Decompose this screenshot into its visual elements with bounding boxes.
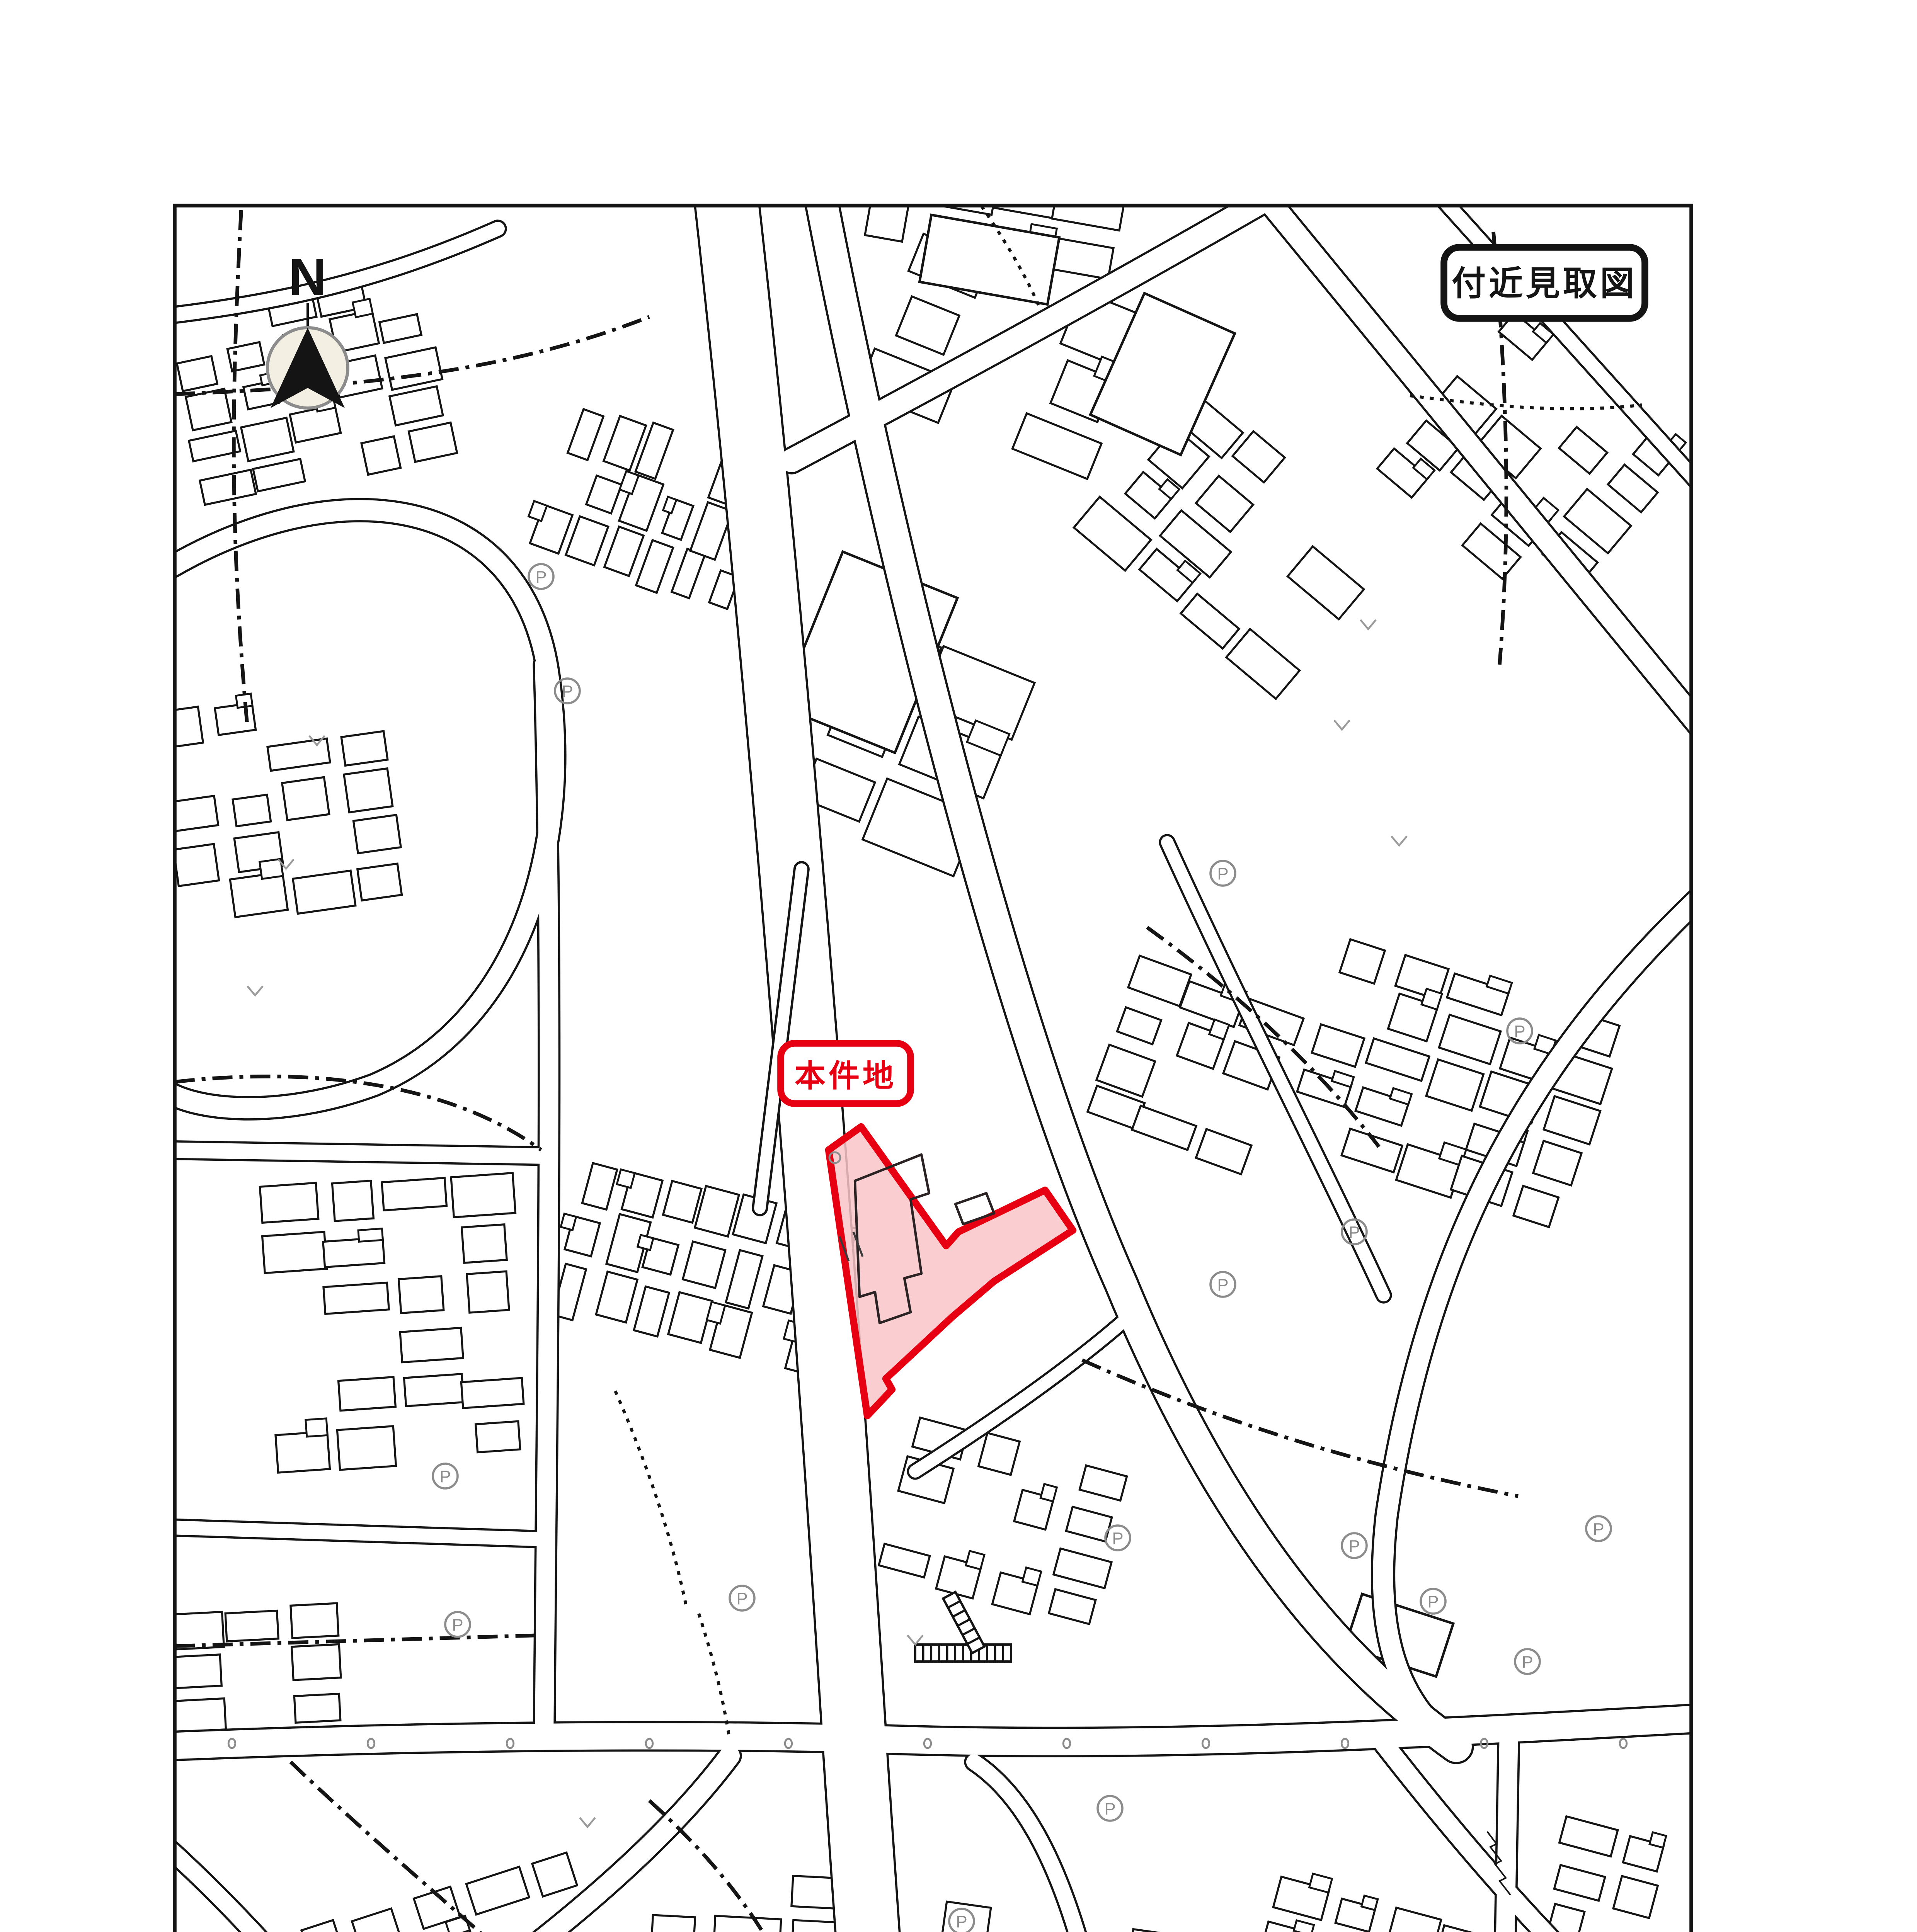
building-footprint <box>174 844 219 886</box>
building-footprint <box>636 540 673 593</box>
building-footprint <box>1533 1141 1582 1185</box>
building-footprint <box>893 186 911 207</box>
parking-marker-glyph: P <box>1522 1653 1533 1672</box>
building-footprint <box>385 347 442 390</box>
boundary-dashdot-line <box>234 210 247 726</box>
building-footprint <box>1196 476 1253 532</box>
building-footprint <box>596 1272 637 1323</box>
building-cluster <box>143 676 408 931</box>
building-footprint <box>282 777 329 820</box>
parking-marker-glyph: P <box>1514 1022 1525 1041</box>
building-footprint <box>1022 1568 1041 1586</box>
building-footprint <box>400 1328 463 1362</box>
building-footprint <box>230 872 288 917</box>
building-footprint <box>253 459 305 492</box>
building-footprint <box>1196 1129 1251 1174</box>
building-footprint <box>879 1544 930 1577</box>
parking-marker: P <box>1515 1649 1540 1674</box>
building-footprint <box>409 423 457 462</box>
building-footprint <box>390 386 443 425</box>
building-footprint <box>1117 1007 1161 1044</box>
road-surface <box>158 1150 547 1156</box>
parking-marker: P <box>445 1612 470 1637</box>
building-footprint <box>1362 1896 1378 1910</box>
parking-marker: P <box>1507 1019 1532 1043</box>
building-footprint <box>586 476 621 514</box>
building-footprint <box>404 1374 463 1406</box>
building-footprint <box>1559 427 1607 474</box>
parking-marker-glyph: P <box>1593 1520 1604 1539</box>
building-footprint <box>865 196 909 241</box>
building-footprint <box>200 470 256 505</box>
building-footprint <box>215 703 256 735</box>
parking-marker-glyph: P <box>1427 1592 1439 1611</box>
building-footprint <box>1040 1484 1057 1502</box>
parking-marker-glyph: P <box>1217 864 1228 883</box>
parking-marker: P <box>1421 1589 1445 1614</box>
subject-site-polygon <box>829 1127 1073 1416</box>
building-footprint <box>1039 169 1069 189</box>
parking-marker: P <box>1586 1516 1611 1541</box>
building-footprint <box>1439 1015 1501 1064</box>
building-footprint <box>532 1852 577 1896</box>
boundary-dotted-line <box>615 1391 686 1607</box>
building-footprint <box>792 1920 840 1932</box>
building-footprint <box>1074 497 1151 571</box>
parking-marker-glyph: P <box>1112 1529 1123 1548</box>
parking-marker-glyph: P <box>736 1589 747 1608</box>
subject-site-label: 本件地 <box>781 1043 911 1104</box>
parking-marker: P <box>1098 1796 1122 1821</box>
building-footprint <box>695 1186 739 1236</box>
building-footprint <box>358 1229 383 1242</box>
building-footprint <box>160 796 218 833</box>
building-footprint <box>361 436 400 474</box>
parking-marker: P <box>1210 1272 1235 1297</box>
road-surface <box>974 1762 1141 1932</box>
building-footprint <box>462 1225 507 1263</box>
vegetation-mark <box>247 986 263 995</box>
building-cluster <box>876 1415 1136 1631</box>
building-footprint <box>1544 1096 1600 1145</box>
building-footprint <box>382 1178 446 1210</box>
building-footprint <box>1613 1876 1658 1918</box>
parking-marker-glyph: P <box>452 1616 463 1634</box>
parking-marker-glyph: P <box>1348 1223 1360 1242</box>
building-footprint <box>177 356 217 391</box>
building-cluster <box>1073 383 1398 699</box>
pole-marker <box>1620 1739 1627 1748</box>
building-footprint <box>566 516 608 565</box>
parking-marker-glyph: P <box>535 568 546 587</box>
building-footprint <box>267 738 330 770</box>
building-footprint <box>971 162 1000 182</box>
parking-marker: P <box>433 1464 458 1488</box>
building-footprint <box>353 815 401 853</box>
building-footprint <box>1608 465 1658 512</box>
vegetation-mark <box>580 1818 595 1827</box>
building-footprint <box>979 1433 1020 1475</box>
building-footprint <box>604 527 644 576</box>
building-footprint <box>726 1250 763 1308</box>
building-footprint <box>561 1214 576 1230</box>
vegetation-mark <box>1360 620 1376 629</box>
title-box: 付近見取図 <box>1444 247 1645 318</box>
building-footprint <box>663 1181 701 1223</box>
building-footprint <box>638 1235 654 1250</box>
building-footprint <box>651 1915 695 1932</box>
building-footprint <box>1132 1106 1196 1150</box>
subject-site <box>829 1127 1073 1416</box>
building-footprint <box>476 1421 520 1452</box>
building-footprint <box>1559 1816 1618 1857</box>
building-footprint <box>1049 1589 1096 1624</box>
building-footprint <box>582 1163 617 1209</box>
building-footprint <box>1387 1908 1441 1932</box>
parking-marker: P <box>1210 861 1235 886</box>
building-cluster <box>1219 1864 1505 1932</box>
building-footprint <box>301 1920 345 1932</box>
building-footprint <box>293 871 356 913</box>
building-footprint <box>683 1242 725 1288</box>
building-footprint <box>466 1867 529 1915</box>
road-surface <box>915 1317 1129 1471</box>
building-cluster <box>258 1169 533 1474</box>
building-footprint <box>337 1426 396 1470</box>
parking-marker-glyph: P <box>1104 1799 1115 1818</box>
parking-marker: P <box>1342 1533 1367 1558</box>
parking-marker: P <box>730 1586 754 1611</box>
building-footprint <box>1288 546 1364 619</box>
building-footprint <box>1079 1466 1127 1501</box>
north-letter: N <box>289 248 327 306</box>
building-footprint <box>323 1238 385 1267</box>
building-footprint <box>1554 1865 1605 1901</box>
building-footprint <box>1181 594 1239 649</box>
building-footprint <box>292 1644 341 1680</box>
building-footprint <box>634 1286 669 1336</box>
building-footprint <box>467 1271 509 1313</box>
parking-marker: P <box>529 564 553 589</box>
parking-marker-glyph: P <box>956 1912 967 1931</box>
parking-marker-glyph: P <box>562 682 573 701</box>
parking-marker-glyph: P <box>1217 1276 1228 1294</box>
building-footprint <box>1012 413 1102 479</box>
parking-marker-glyph: P <box>439 1467 451 1486</box>
building-footprint <box>172 1698 226 1732</box>
stairs-symbol <box>915 1645 1011 1662</box>
building-footprint <box>225 1611 278 1641</box>
subject-site-label-text: 本件地 <box>795 1059 897 1093</box>
building-footprint <box>294 1694 340 1723</box>
building-footprint <box>568 409 604 460</box>
building-cluster <box>638 1868 845 1932</box>
vegetation-mark <box>1391 836 1407 845</box>
building-footprint <box>341 731 388 765</box>
parking-marker: P <box>1105 1526 1130 1550</box>
building-footprint <box>1054 1549 1112 1588</box>
building-footprint <box>1129 1929 1181 1932</box>
building-footprint <box>358 864 402 900</box>
building-footprint <box>1294 1920 1314 1932</box>
building-cluster <box>165 1603 343 1732</box>
site-map: PPPPPPPPPPPPPPPPPP 本件地 N 付近見取図 縮尺 1 : 15… <box>0 0 1917 1932</box>
road-surface <box>544 665 549 1740</box>
building-footprint <box>966 1551 984 1570</box>
building-footprint <box>896 296 959 355</box>
building-footprint <box>1426 1060 1483 1111</box>
building-footprint <box>241 418 294 461</box>
building-footprint <box>617 1169 635 1188</box>
building-footprint <box>352 1908 400 1932</box>
building-footprint <box>344 769 393 813</box>
building-footprint <box>461 1378 524 1408</box>
building-footprint <box>1226 629 1300 699</box>
vicinity-map-page: PPPPPPPPPPPPPPPPPP 本件地 N 付近見取図 縮尺 1 : 15… <box>0 0 1917 1932</box>
building-footprint <box>399 1276 444 1313</box>
building-footprint <box>339 1377 396 1411</box>
building-footprint <box>668 1292 712 1343</box>
building-footprint <box>276 1432 330 1473</box>
vegetation-mark <box>907 1635 923 1645</box>
building-footprint <box>672 549 705 598</box>
page-title: 付近見取図 <box>1452 264 1637 303</box>
building-cluster <box>1375 301 1695 620</box>
building-footprint <box>1340 939 1385 984</box>
parking-marker-glyph: P <box>1348 1537 1360 1556</box>
building-footprint <box>290 405 341 442</box>
building-footprint <box>926 167 998 214</box>
building-footprint <box>1650 1832 1666 1848</box>
road-surface <box>158 1719 1697 1747</box>
building-footprint <box>1233 431 1285 482</box>
building-footprint <box>1366 1038 1429 1081</box>
building-footprint <box>260 1183 318 1223</box>
building-footprint <box>262 1232 327 1273</box>
building-footprint <box>1312 1024 1364 1067</box>
building-footprint <box>233 795 271 827</box>
building-footprint <box>291 1603 339 1638</box>
building-footprint <box>323 1282 389 1314</box>
building-footprint <box>1438 1925 1496 1932</box>
map-content: PPPPPPPPPPPPPPPPPP <box>132 141 1697 1932</box>
vegetation-mark <box>1334 720 1350 730</box>
building-footprint <box>332 1181 373 1221</box>
building-footprint <box>713 1916 781 1932</box>
building-footprint <box>380 314 421 343</box>
building-footprint <box>352 299 373 317</box>
building-footprint <box>1128 956 1191 1006</box>
building-footprint <box>451 1173 515 1217</box>
building-footprint <box>1514 1186 1559 1227</box>
building-footprint <box>306 1418 328 1437</box>
